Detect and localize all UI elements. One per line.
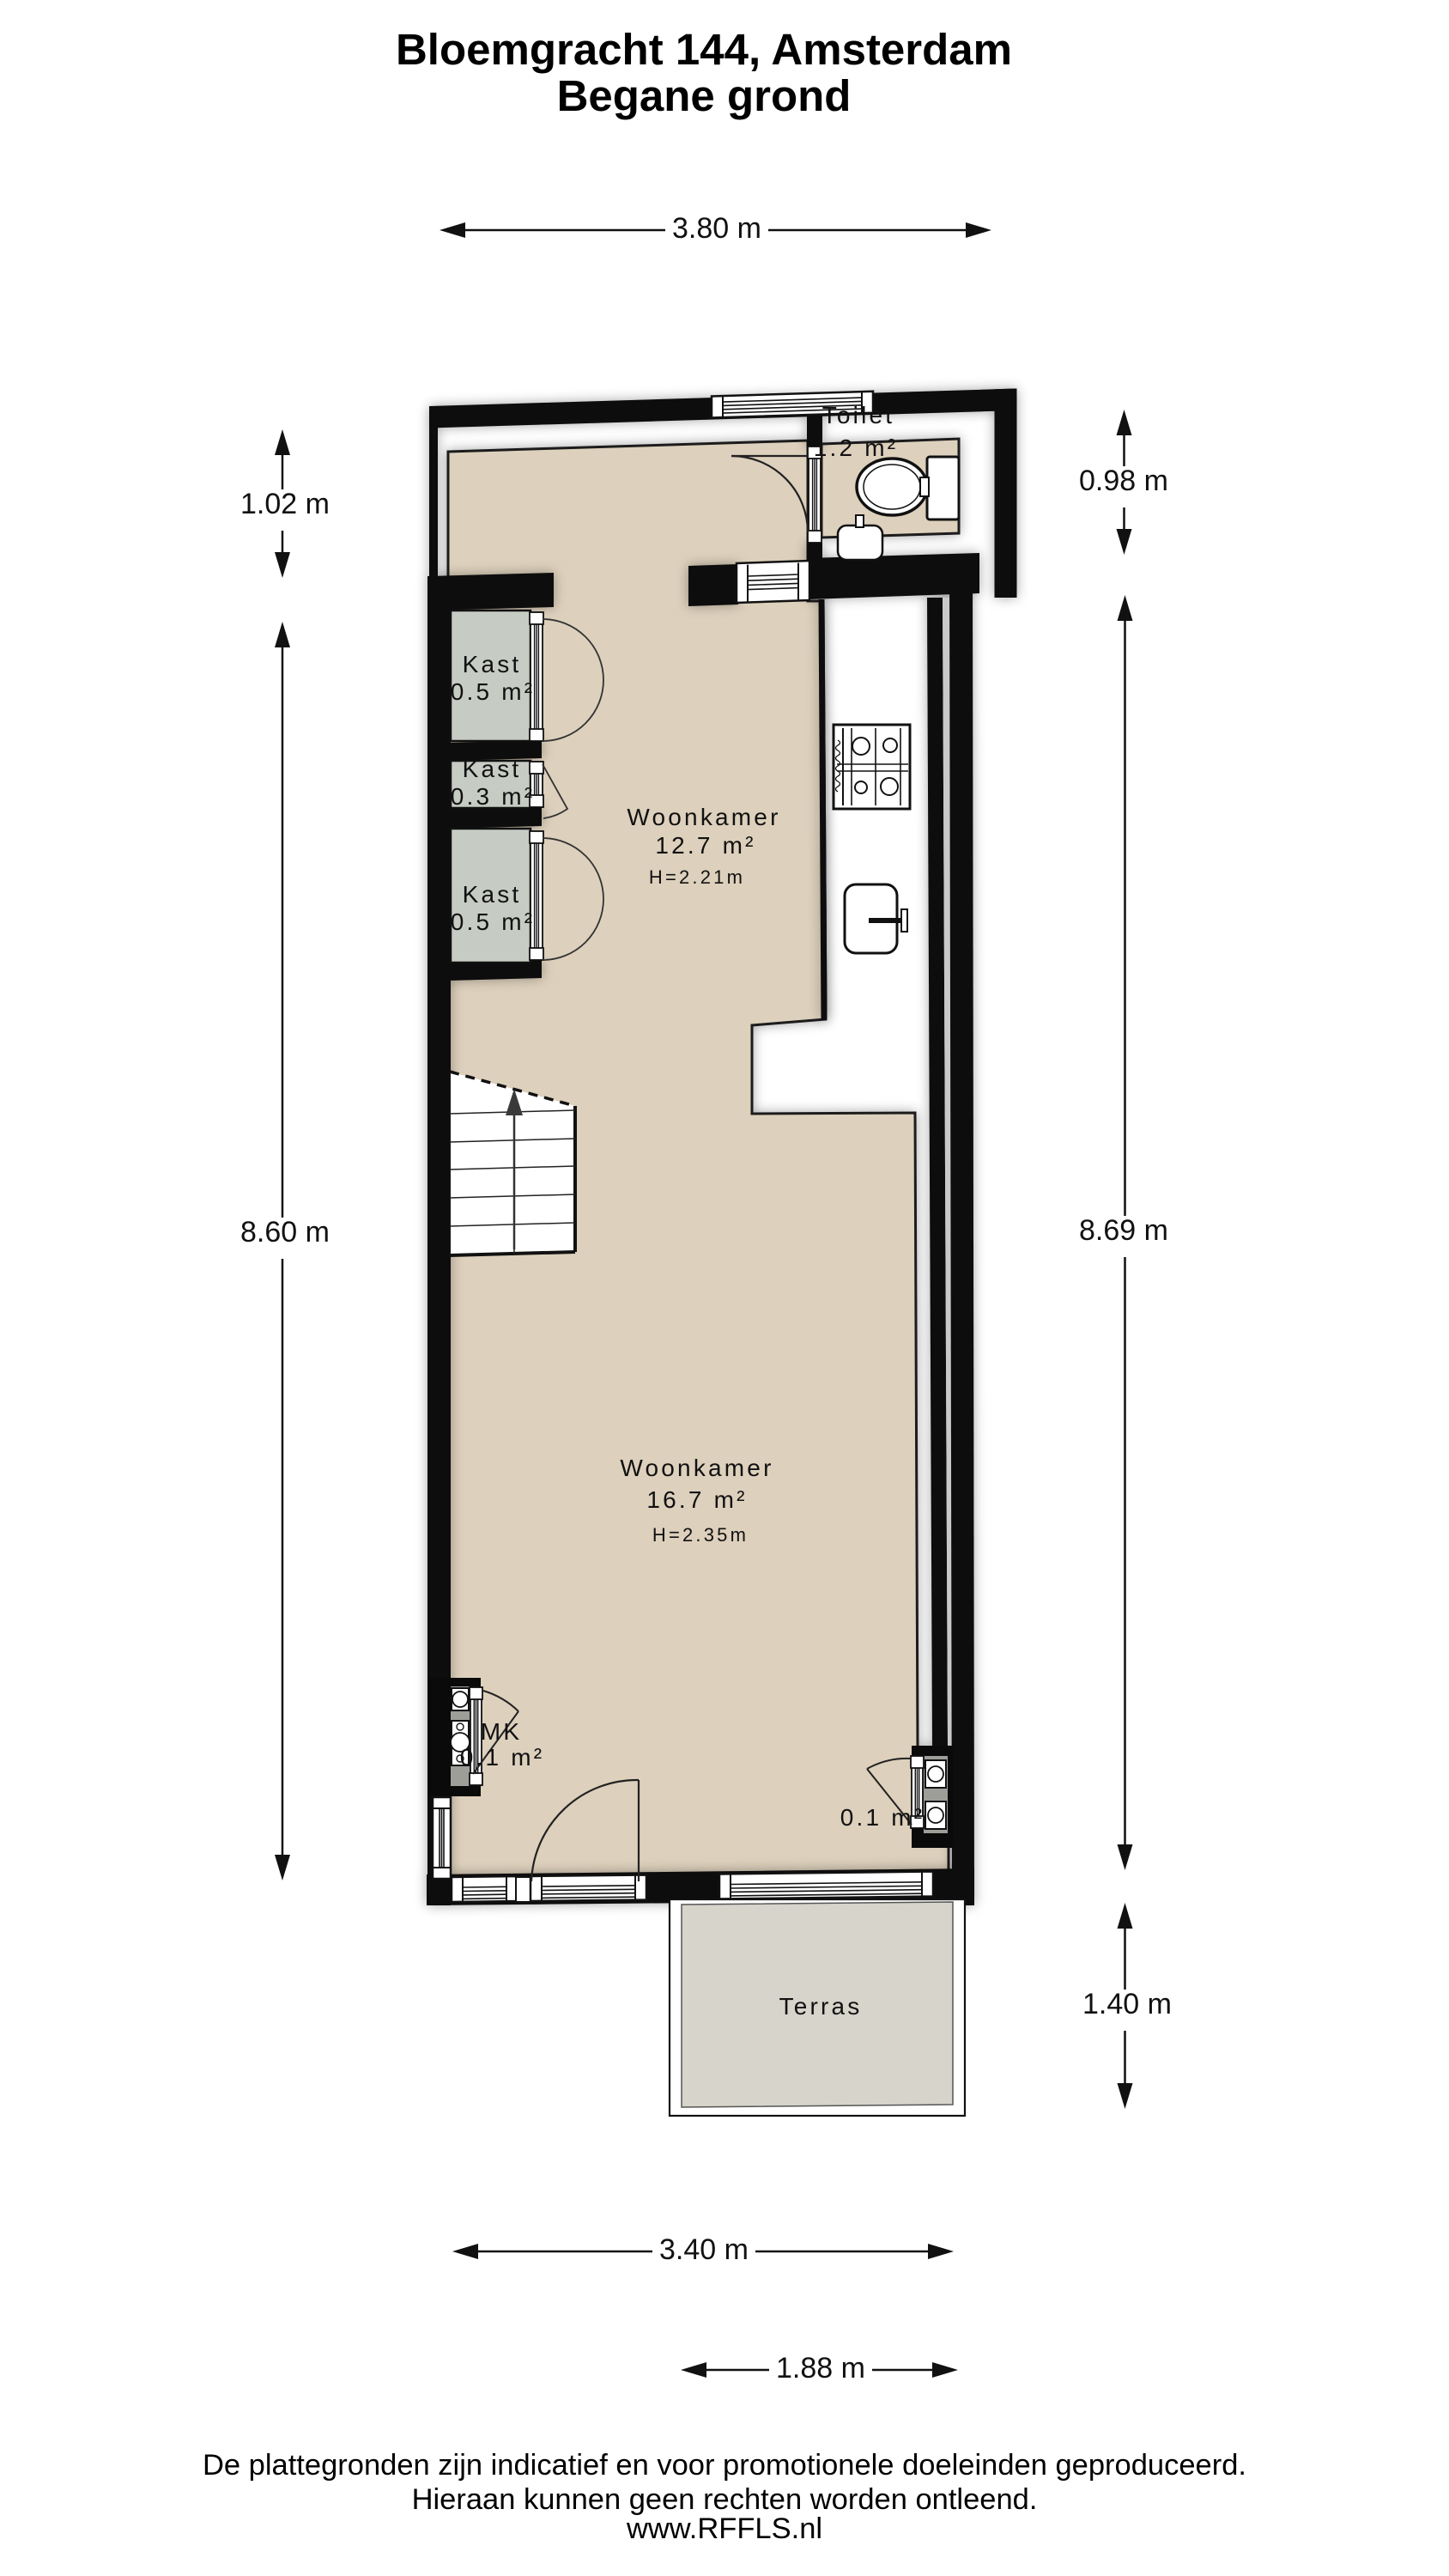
- svg-text:1.02 m: 1.02 m: [240, 488, 330, 520]
- svg-text:Hieraan kunnen geen rechten wo: Hieraan kunnen geen rechten worden ontle…: [412, 2483, 1038, 2516]
- svg-text:12.7 m²: 12.7 m²: [655, 832, 755, 859]
- svg-text:0.5 m²: 0.5 m²: [451, 678, 536, 705]
- svg-text:Kast: Kast: [463, 756, 522, 782]
- svg-text:16.7 m²: 16.7 m²: [646, 1486, 747, 1513]
- svg-text:3.80 m: 3.80 m: [672, 212, 761, 245]
- svg-text:0.1 m²: 0.1 m²: [460, 1744, 545, 1771]
- svg-text:8.69 m: 8.69 m: [1079, 1214, 1168, 1247]
- svg-text:Woonkamer: Woonkamer: [620, 1455, 773, 1481]
- svg-text:1.88 m: 1.88 m: [776, 2352, 865, 2385]
- svg-text:1.2 m²: 1.2 m²: [814, 434, 899, 461]
- svg-text:Kast: Kast: [463, 651, 522, 677]
- svg-text:1.40 m: 1.40 m: [1082, 1988, 1172, 2020]
- svg-text:Terras: Terras: [779, 1993, 863, 2020]
- svg-text:H=2.35m: H=2.35m: [652, 1524, 749, 1546]
- svg-text:Kast: Kast: [463, 881, 522, 908]
- svg-text:Begane grond: Begane grond: [557, 71, 852, 120]
- svg-text:H=2.21m: H=2.21m: [649, 866, 745, 888]
- svg-text:8.60 m: 8.60 m: [240, 1216, 330, 1249]
- svg-text:0.98 m: 0.98 m: [1079, 465, 1168, 497]
- svg-text:Bloemgracht 144, Amsterdam: Bloemgracht 144, Amsterdam: [396, 25, 1012, 74]
- svg-text:De plattegronden zijn indicati: De plattegronden zijn indicatief en voor…: [203, 2449, 1246, 2482]
- svg-text:MK: MK: [481, 1718, 522, 1745]
- svg-text:0.3 m²: 0.3 m²: [451, 783, 536, 810]
- svg-text:0.5 m²: 0.5 m²: [451, 908, 536, 935]
- svg-text:www.RFFLS.nl: www.RFFLS.nl: [626, 2512, 822, 2545]
- svg-text:Toilet: Toilet: [822, 402, 895, 428]
- svg-text:0.1 m²: 0.1 m²: [840, 1804, 925, 1831]
- svg-text:3.40 m: 3.40 m: [659, 2233, 749, 2266]
- svg-text:Woonkamer: Woonkamer: [627, 804, 780, 830]
